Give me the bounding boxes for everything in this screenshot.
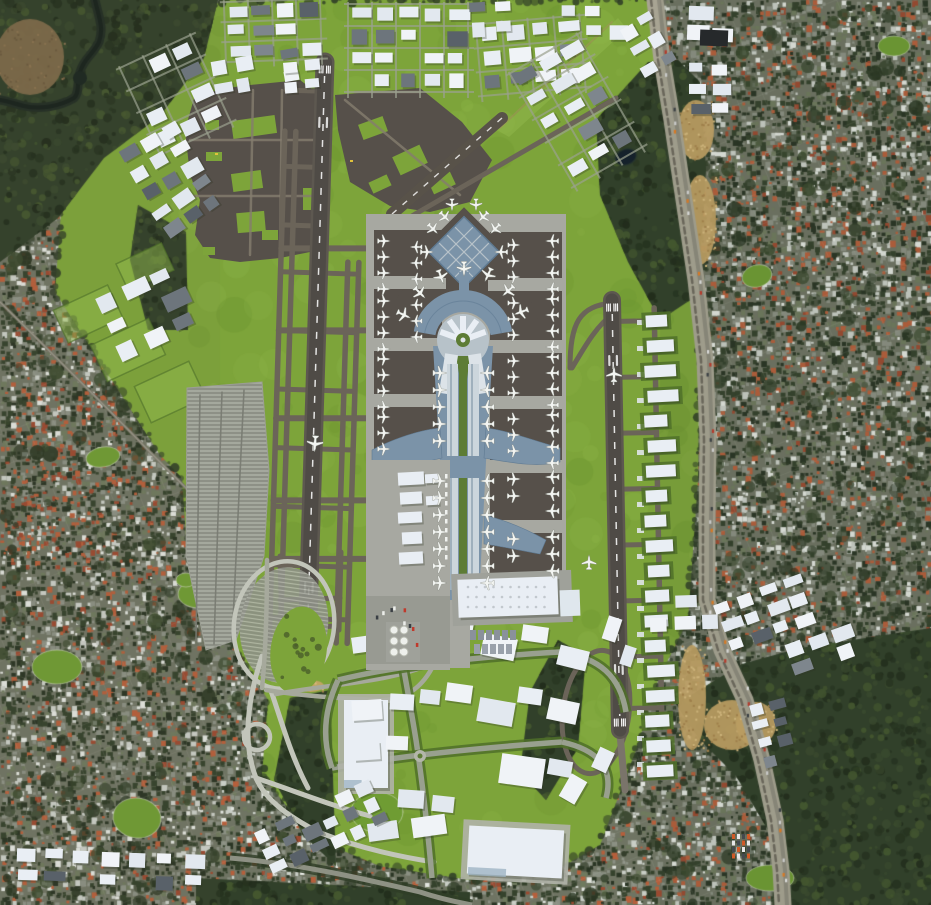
aerial-airport-masterplan-image — [0, 0, 931, 905]
sw-estate-fields — [53, 243, 205, 423]
terminal-precinct — [366, 207, 580, 670]
masterplan-overlay — [0, 0, 931, 905]
